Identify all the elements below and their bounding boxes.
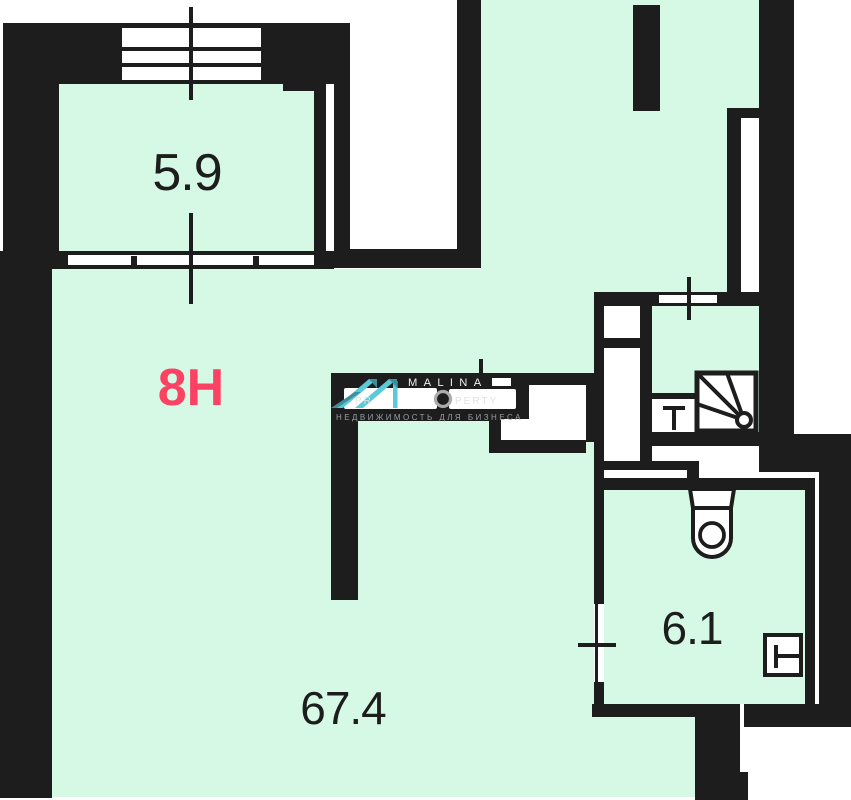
svg-text:PERTY: PERTY: [455, 396, 498, 407]
svg-text:5.9: 5.9: [152, 144, 221, 202]
svg-text:MALINA: MALINA: [408, 377, 487, 389]
svg-text:НЕДВИЖИМОСТЬ ДЛЯ БИЗНЕСА: НЕДВИЖИМОСТЬ ДЛЯ БИЗНЕСА: [336, 413, 523, 422]
svg-text:67.4: 67.4: [300, 682, 386, 734]
svg-text:PR: PR: [355, 396, 373, 407]
svg-text:6.1: 6.1: [662, 602, 723, 654]
svg-text:8Н: 8Н: [158, 359, 224, 417]
